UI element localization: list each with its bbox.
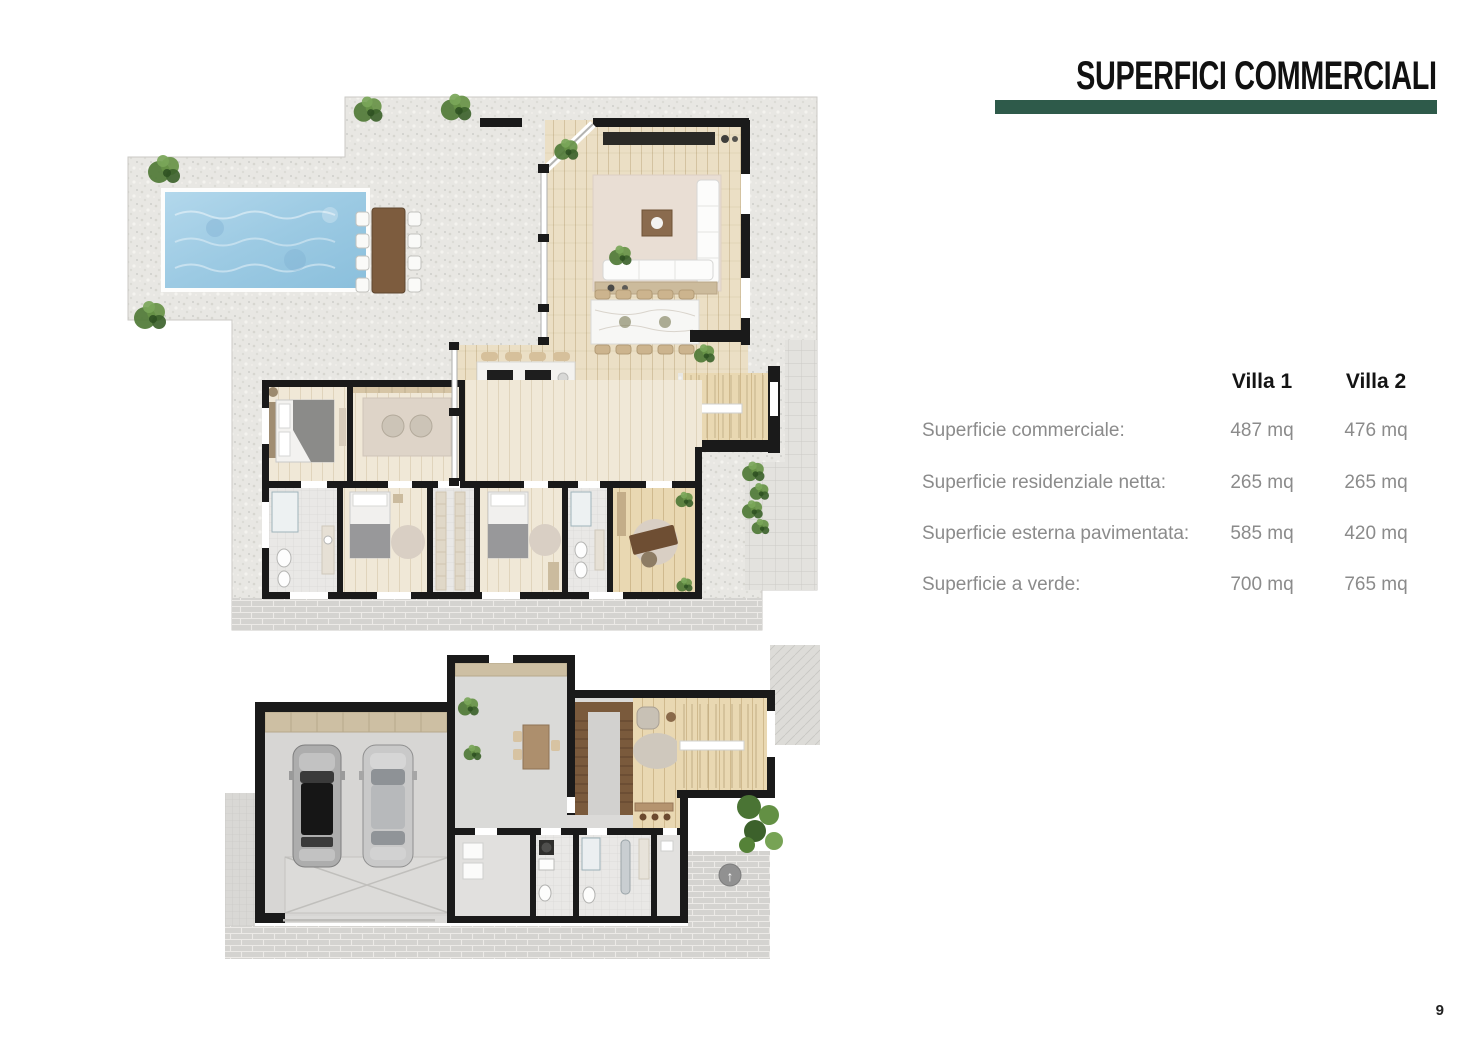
row-label: Superficie residenziale netta: bbox=[922, 472, 1204, 494]
row-label: Superficie a verde: bbox=[922, 574, 1204, 596]
brochure-page: SUPERFICI COMMERCIALI bbox=[0, 0, 1480, 1050]
row-label: Superficie commerciale: bbox=[922, 420, 1204, 442]
table-row: Superficie residenziale netta: 265 mq 26… bbox=[922, 472, 1442, 498]
table-row: Superficie a verde: 700 mq 765 mq bbox=[922, 574, 1442, 600]
villa-table: Villa 1 Villa 2 Superficie commerciale: … bbox=[922, 370, 1442, 610]
villa2-value: 476 mq bbox=[1318, 420, 1434, 442]
basement-rooms bbox=[455, 835, 680, 916]
entry-room bbox=[455, 663, 567, 828]
villa2-value: 265 mq bbox=[1318, 472, 1434, 494]
villa2-value: 765 mq bbox=[1318, 574, 1434, 596]
page-title: SUPERFICI COMMERCIALI bbox=[1077, 54, 1437, 99]
car bbox=[289, 745, 345, 867]
ground-floor-plan-svg bbox=[125, 90, 820, 635]
ground-floor-plan bbox=[125, 90, 820, 635]
table-row: Superficie commerciale: 487 mq 476 mq bbox=[922, 420, 1442, 446]
villa1-value: 487 mq bbox=[1204, 420, 1320, 442]
garage-door-line bbox=[283, 919, 435, 922]
car bbox=[359, 745, 417, 867]
dining-table bbox=[591, 290, 699, 354]
north-arrow-glyph: ↑ bbox=[727, 868, 734, 884]
villa2-value: 420 mq bbox=[1318, 523, 1434, 545]
pool bbox=[163, 190, 368, 290]
villa1-value: 265 mq bbox=[1204, 472, 1320, 494]
title-underline bbox=[995, 100, 1437, 114]
villa1-column-header: Villa 1 bbox=[1204, 370, 1320, 394]
basement-plan-svg: ↑ bbox=[225, 645, 825, 960]
table-row: Superficie esterna pavimentata: 585 mq 4… bbox=[922, 523, 1442, 549]
villa2-column-header: Villa 2 bbox=[1318, 370, 1434, 394]
basement-plan: ↑ bbox=[225, 645, 825, 960]
garage bbox=[265, 712, 449, 916]
north-arrow-icon: ↑ bbox=[719, 864, 741, 886]
villa1-value: 700 mq bbox=[1204, 574, 1320, 596]
page-number: 9 bbox=[1436, 1002, 1444, 1019]
wine-cellar bbox=[575, 702, 633, 815]
garden-bush bbox=[737, 795, 783, 853]
basement-staircase bbox=[677, 702, 767, 790]
row-label: Superficie esterna pavimentata: bbox=[922, 523, 1204, 545]
table-header-row: Villa 1 Villa 2 bbox=[922, 370, 1442, 396]
villa1-value: 585 mq bbox=[1204, 523, 1320, 545]
